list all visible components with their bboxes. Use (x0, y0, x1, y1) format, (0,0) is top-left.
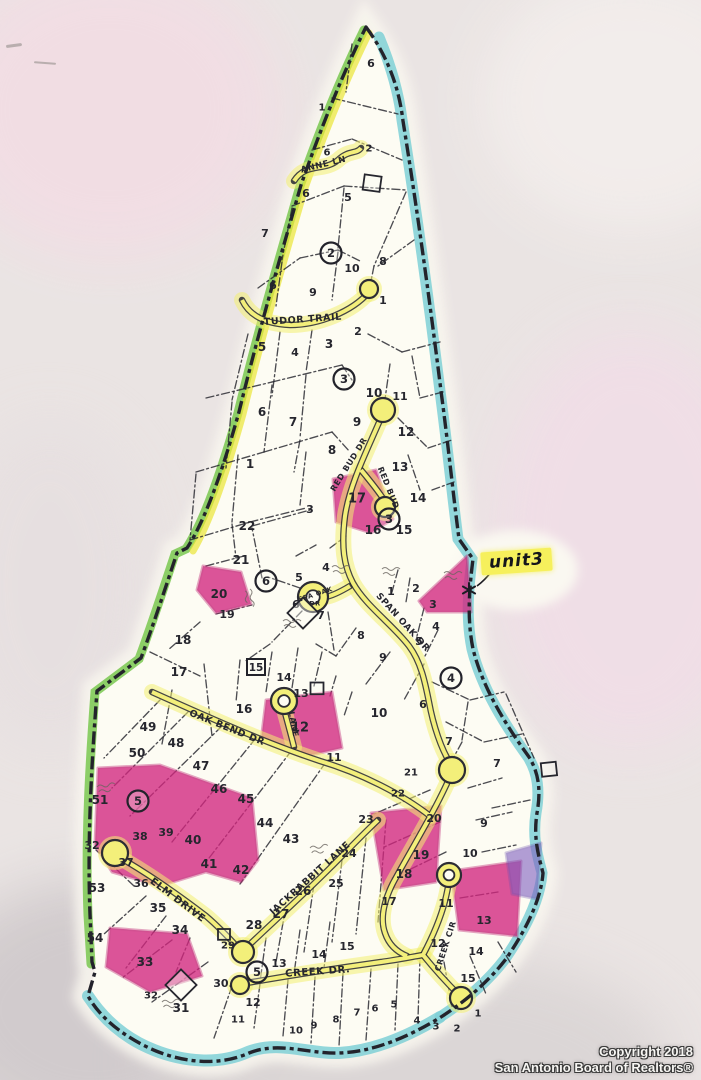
lot-number: 8 (379, 255, 387, 268)
lot-number: 29 (221, 941, 235, 952)
lot-number: 23 (358, 813, 373, 826)
lot-number: 1 (246, 457, 254, 471)
lot-number: 7 (445, 735, 453, 748)
lot-number: 17 (381, 895, 396, 908)
lot-number: 5 (344, 191, 352, 204)
lot-number: 10 (289, 1026, 303, 1037)
block-number: 5 (134, 794, 142, 808)
lot-number: 44 (257, 816, 274, 830)
lot-number: 41 (201, 857, 218, 871)
lot-number: 45 (238, 792, 255, 806)
lot-number: 13 (476, 914, 491, 927)
lot-number: 9 (311, 1021, 318, 1032)
lot-number: 28 (246, 918, 263, 932)
road-circle-island (444, 870, 455, 881)
lot-number: 9 (309, 286, 317, 299)
lot-number: 54 (87, 931, 104, 945)
lot-number: 14 (276, 671, 292, 684)
copyright-line2: San Antonio Board of Realtors® (495, 1060, 693, 1076)
lot-number: 10 (366, 386, 383, 400)
lot-number: 11 (438, 897, 453, 910)
lot-number: 5 (258, 340, 266, 354)
lot-number: 6 (419, 698, 427, 711)
lot-number: 6 (258, 405, 266, 419)
lot-number: 2 (454, 1024, 461, 1035)
block-number: 4 (447, 671, 455, 685)
lot-number: 6 (372, 1004, 379, 1015)
lot-number: 32 (144, 991, 158, 1002)
lot-number: 16 (365, 523, 382, 537)
block-number: 3 (340, 372, 348, 386)
lot-number: 7 (493, 757, 501, 770)
lot-number: 8 (333, 1015, 340, 1026)
lot-highlight (506, 843, 541, 899)
lot-number: 9 (353, 415, 361, 429)
lot-number: 53 (89, 881, 106, 895)
lot-number: 2 (412, 582, 420, 595)
lot-number: 4 (432, 620, 440, 633)
lot-number: 6 (324, 148, 331, 159)
lot-number: 13 (293, 687, 308, 700)
lot-number: 17 (348, 492, 366, 507)
lot-number: 9 (379, 651, 387, 664)
lot-number: 8 (357, 629, 365, 642)
lot-number: 2 (354, 325, 362, 338)
lot-number: 42 (233, 863, 250, 877)
lot-number: 18 (175, 633, 192, 647)
lot-number: 46 (211, 782, 228, 796)
lot-number: 11 (231, 1015, 245, 1026)
lot-number: 22 (391, 789, 405, 800)
lot-number: 5 (391, 1000, 398, 1011)
lot-number: 47 (193, 759, 210, 773)
lot-number: 35 (150, 901, 167, 915)
lot-number: 3 (429, 598, 437, 611)
lot-number: 1 (319, 103, 326, 114)
lot-number: 19 (413, 848, 430, 862)
lot-number: 32 (84, 839, 99, 852)
lot-number: 4 (322, 561, 330, 574)
lot-number: 39 (158, 826, 173, 839)
lot-number: 3 (433, 1022, 440, 1033)
lot-number: 6 (302, 187, 310, 200)
lot-number: 36 (133, 877, 149, 890)
block-number: 6 (262, 574, 270, 588)
lot-number: 25 (328, 877, 343, 890)
structure-square-icon (363, 174, 382, 192)
lot-number: 49 (140, 720, 157, 734)
structure-square-icon (218, 929, 230, 940)
structure-square-icon (311, 683, 324, 695)
lot-number: 43 (283, 832, 300, 846)
lot-number: 51 (92, 793, 109, 807)
lot-number: 6 (367, 57, 375, 70)
lot-number: 34 (172, 923, 189, 937)
lot-number: 40 (185, 833, 202, 847)
culdesac-bulb (232, 941, 254, 963)
culdesac-bulb (231, 976, 249, 994)
culdesac-bulb (360, 280, 378, 298)
lot-number: 7 (261, 227, 269, 240)
lot-number: 4 (414, 1016, 421, 1027)
photo-background: 6162657108691543210116791281131731416152… (0, 0, 701, 1080)
copyright-line1: Copyright 2018 (495, 1044, 693, 1060)
lot-number: 10 (371, 706, 388, 720)
lot-number: 37 (118, 856, 133, 869)
lot-number: 2 (366, 144, 373, 155)
lot-number: 1 (475, 1009, 482, 1020)
lot-number: 21 (233, 553, 250, 567)
lot-number: 6 (269, 279, 277, 292)
lot-number: 18 (396, 867, 413, 881)
lot-number: 14 (410, 491, 427, 505)
lot-number: 10 (462, 847, 478, 860)
lot-number: 38 (132, 830, 147, 843)
road-label-dr: DR (309, 599, 321, 607)
lot-number: 48 (168, 736, 185, 750)
lot-number: 30. (213, 977, 233, 990)
lot-number: 9 (480, 817, 488, 830)
copyright: Copyright 2018 San Antonio Board of Real… (495, 1044, 693, 1076)
lot-number: 12 (398, 425, 415, 439)
lot-number: 15 (339, 940, 354, 953)
lot-number: 7 (354, 1008, 361, 1019)
lot-number: 17 (171, 665, 188, 679)
lot-number: 1 (379, 294, 387, 307)
block-number: 5 (253, 965, 261, 979)
lot-number: 8 (328, 443, 336, 457)
boxed-number: 15 (249, 662, 264, 674)
lot-number: 7 (317, 609, 325, 622)
lot-number: 3 (325, 337, 333, 351)
lot-number: 20 (211, 587, 228, 601)
lot-number: 10 (344, 262, 360, 275)
lot-number: 3 (306, 503, 314, 516)
lot-number: 13 (392, 460, 409, 474)
lot-number: 5 (295, 571, 303, 584)
lot-number: 33 (137, 955, 154, 969)
lot-number: 21 (404, 768, 418, 779)
lot-number: 1 (387, 585, 395, 598)
block-number: 3 (385, 512, 393, 526)
lot-number: 4 (291, 346, 299, 359)
culdesac-bulb (439, 757, 465, 783)
lot-number: 14 (468, 945, 484, 958)
lot-number: 31 (173, 1001, 190, 1015)
lot-number: 11 (392, 390, 407, 403)
lot-number: 14 (311, 948, 327, 961)
unit-label: unit3 (480, 548, 552, 576)
structure-square-icon (541, 762, 557, 777)
lot-number: 7 (289, 415, 297, 429)
lot-number: 22 (239, 519, 256, 533)
lot-number: 20 (426, 812, 442, 825)
lot-number: 50 (129, 746, 146, 760)
lot-number: 15 (460, 972, 475, 985)
lot-number: 16 (236, 702, 253, 716)
road-circle-island (278, 695, 290, 707)
lot-number: 11 (326, 751, 341, 764)
plat-map: 6162657108691543210116791281131731416152… (0, 0, 701, 1080)
block-number: 2 (327, 246, 335, 260)
lot-number: 19 (219, 608, 234, 621)
lot-number: 12 (245, 996, 260, 1009)
